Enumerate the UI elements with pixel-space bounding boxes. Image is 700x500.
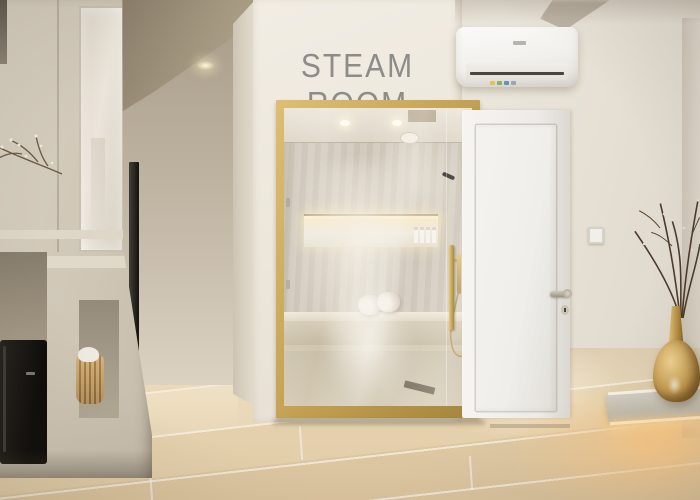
door-bottom-shadow	[490, 424, 570, 428]
dried-branch-decor-left	[0, 116, 66, 186]
door-handle-rosette	[563, 289, 572, 298]
cabinet-dark-corner	[0, 0, 7, 64]
ac-vent-slot	[470, 72, 564, 75]
mini-fridge	[0, 340, 47, 464]
mirror-reflection	[91, 138, 105, 238]
glass-door-handle	[449, 245, 454, 330]
glass-reflection-overlay	[284, 108, 472, 406]
bathroom-door	[476, 125, 556, 411]
steam-room-gold-frame	[276, 100, 480, 418]
cubby-opening-left	[0, 252, 47, 344]
steam-room-front-wall: STEAM ROOM	[253, 0, 462, 422]
door-keyhole	[561, 305, 569, 315]
ac-energy-stickers	[490, 81, 516, 85]
fridge-handle	[3, 346, 6, 452]
glass-door-edge	[446, 108, 447, 406]
ac-brand-logo	[513, 41, 526, 45]
ac-vent-panel	[466, 63, 568, 80]
bathroom-door-frame	[462, 110, 570, 418]
threshold-shadow	[273, 420, 485, 425]
dried-branch-decor-right	[614, 188, 700, 320]
light-switch	[588, 227, 604, 244]
cabinet-base-shadow	[0, 450, 152, 478]
fridge-logo	[26, 372, 35, 375]
ac-unit	[456, 27, 578, 87]
gold-vase	[652, 306, 700, 402]
ac-sticker	[511, 81, 516, 85]
steam-room-side-face	[233, 0, 255, 406]
spa-interior-photo: STEAM ROOM	[0, 0, 700, 500]
ac-sticker	[504, 81, 509, 85]
recessed-ceiling-light	[197, 61, 214, 70]
wicker-basket	[76, 356, 104, 404]
steam-room-block: STEAM ROOM	[233, 0, 462, 426]
vase-highlight	[668, 376, 681, 394]
cabinet-shelf-edge	[0, 230, 126, 239]
ac-sticker	[497, 81, 502, 85]
steam-room-interior	[284, 108, 472, 406]
mirror-panel	[79, 6, 124, 252]
ac-sticker	[490, 81, 495, 85]
basket-towel	[78, 347, 99, 362]
